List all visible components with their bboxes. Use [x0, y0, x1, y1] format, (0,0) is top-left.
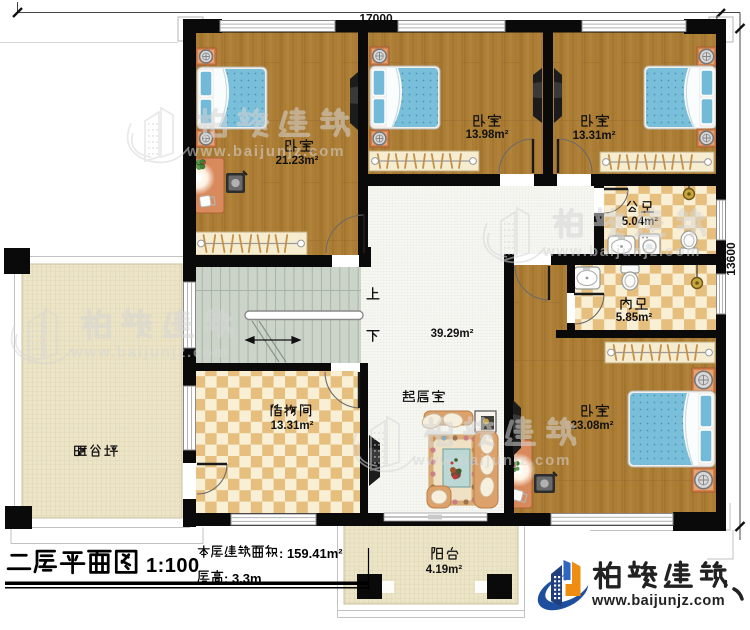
svg-text:13.31m²: 13.31m²: [573, 130, 616, 142]
svg-text:www.baijunjz.com: www.baijunjz.com: [70, 344, 229, 361]
svg-text:1:100: 1:100: [146, 555, 200, 577]
svg-text:4.19m²: 4.19m²: [426, 564, 463, 576]
svg-text:13.98m²: 13.98m²: [466, 129, 509, 141]
svg-text:www.baijunjz.com: www.baijunjz.com: [591, 593, 725, 609]
svg-text:www.baijunjz.com: www.baijunjz.com: [186, 143, 345, 160]
svg-text:: 159.41m²: : 159.41m²: [279, 546, 343, 561]
svg-text:www.baijunjz.com: www.baijunjz.com: [412, 452, 571, 469]
svg-text:39.29m²: 39.29m²: [431, 328, 474, 340]
svg-text:5.85m²: 5.85m²: [616, 312, 653, 324]
svg-text:13.31m²: 13.31m²: [271, 420, 314, 432]
svg-text:23.08m²: 23.08m²: [571, 420, 614, 432]
svg-text:13600: 13600: [724, 242, 738, 276]
svg-text:: 3.3m: : 3.3m: [224, 571, 262, 586]
svg-text:www.baijunjz.com: www.baijunjz.com: [542, 243, 701, 260]
